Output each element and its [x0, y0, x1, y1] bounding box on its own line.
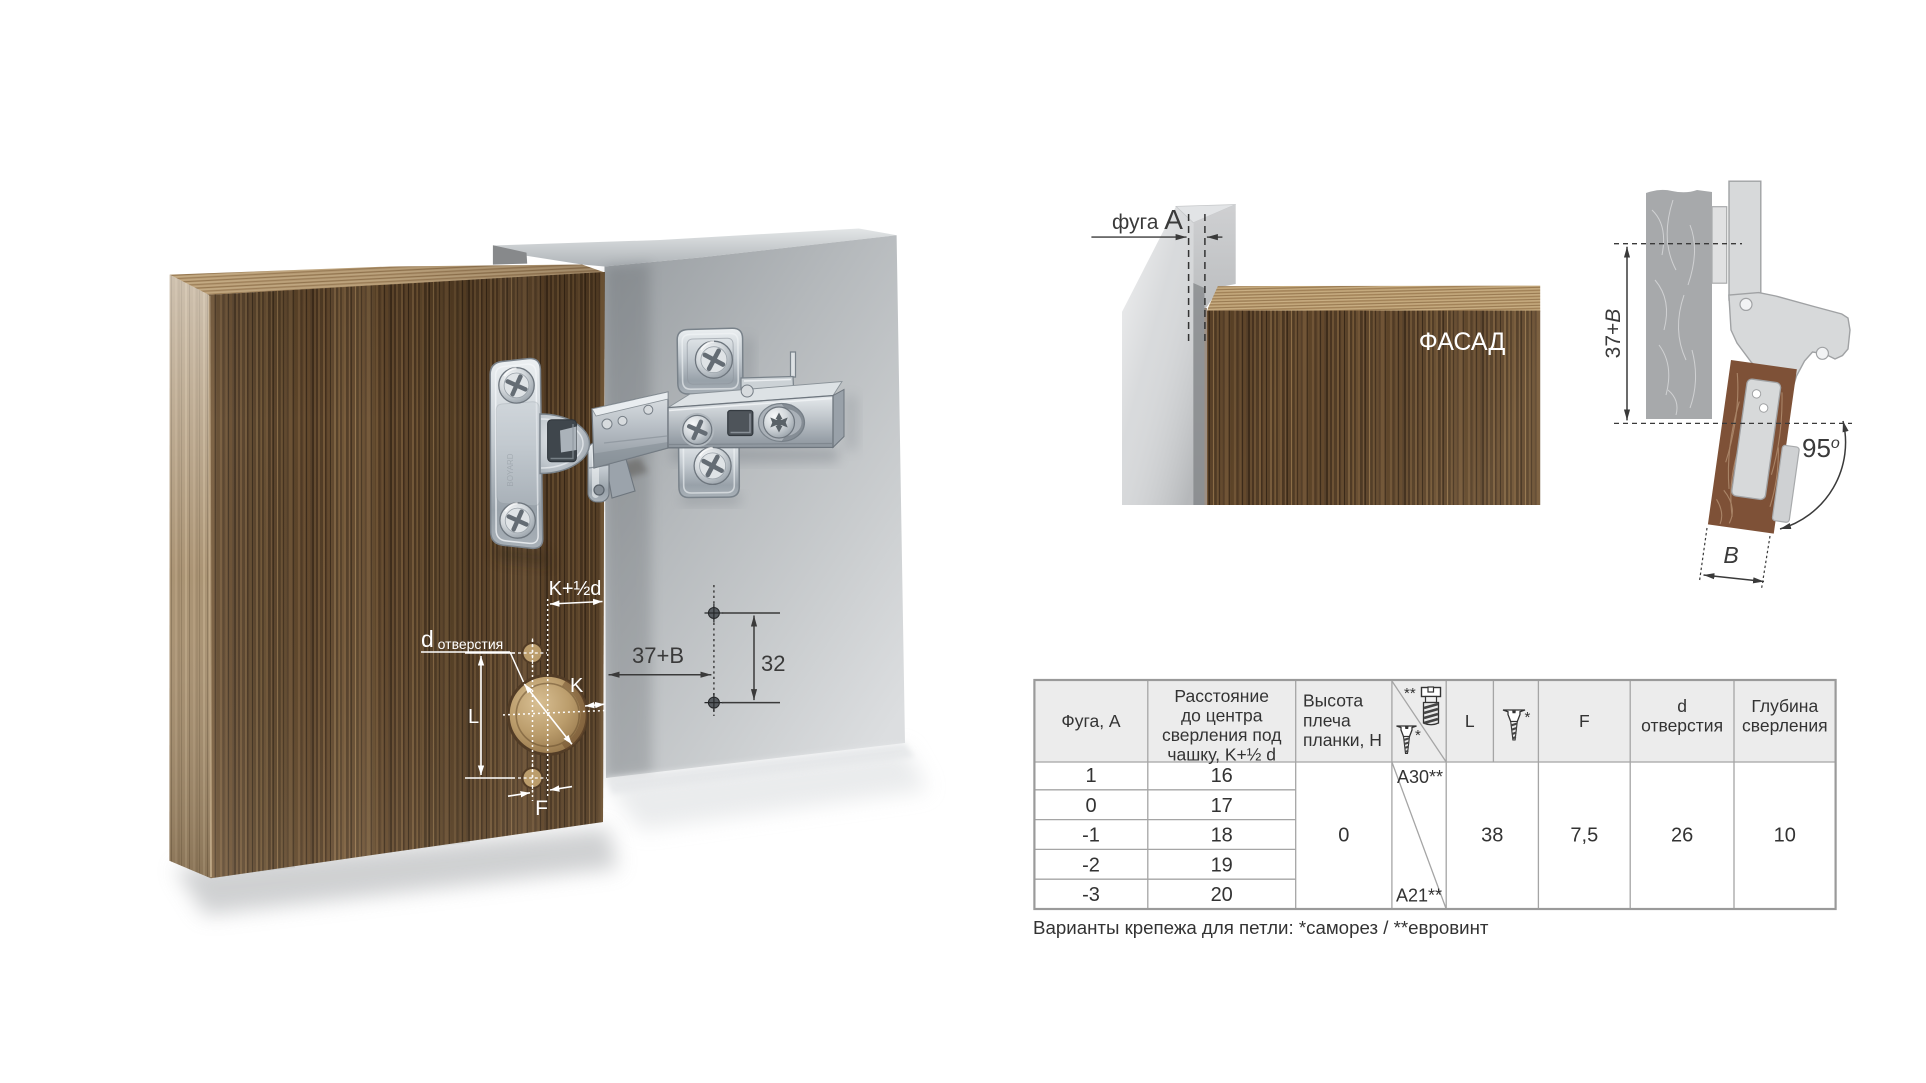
svg-text:0: 0: [1338, 825, 1349, 847]
svg-text:17: 17: [1211, 795, 1233, 817]
svg-text:B: B: [1723, 542, 1738, 568]
svg-text:d: d: [1677, 696, 1687, 716]
svg-text:20: 20: [1211, 884, 1233, 906]
svg-text:**: **: [1404, 685, 1416, 702]
svg-text:37+B: 37+B: [632, 643, 684, 668]
svg-text:16: 16: [1211, 765, 1233, 787]
svg-text:-1: -1: [1082, 825, 1100, 847]
svg-text:сверления: сверления: [1742, 716, 1828, 736]
svg-text:до центра: до центра: [1181, 706, 1263, 726]
svg-text:A21**: A21**: [1396, 886, 1442, 906]
svg-text:плеча: плеча: [1303, 710, 1351, 730]
svg-text:BOYARD: BOYARD: [506, 453, 515, 486]
svg-text:Высота: Высота: [1303, 691, 1363, 711]
svg-text:чашку, K+½ d: чашку, K+½ d: [1167, 745, 1276, 765]
svg-text:*: *: [1415, 727, 1421, 744]
svg-text:*: *: [1525, 709, 1531, 726]
svg-text:19: 19: [1211, 855, 1233, 877]
svg-text:-3: -3: [1082, 884, 1100, 906]
svg-text:26: 26: [1671, 825, 1693, 847]
svg-text:38: 38: [1481, 825, 1503, 847]
svg-text:отверстия: отверстия: [1641, 716, 1723, 736]
svg-text:Варианты крепежа для петли: *с: Варианты крепежа для петли: *саморез / *…: [1033, 917, 1489, 938]
svg-text:32: 32: [761, 651, 785, 676]
svg-text:A30**: A30**: [1397, 767, 1443, 787]
svg-text:F: F: [1579, 711, 1590, 731]
svg-text:7,5: 7,5: [1570, 825, 1598, 847]
svg-text:планки, Н: планки, Н: [1303, 730, 1382, 750]
svg-text:-2: -2: [1082, 855, 1100, 877]
svg-text:0: 0: [1085, 795, 1096, 817]
svg-text:10: 10: [1774, 825, 1796, 847]
svg-text:сверления под: сверления под: [1162, 725, 1281, 745]
svg-text:1: 1: [1085, 765, 1096, 787]
svg-text:Расстояние: Расстояние: [1174, 686, 1269, 706]
svg-text:K: K: [570, 675, 584, 697]
svg-text:L: L: [468, 706, 479, 728]
svg-text:37+B: 37+B: [1602, 309, 1625, 359]
svg-text:18: 18: [1211, 825, 1233, 847]
svg-text:L: L: [1465, 711, 1475, 731]
svg-text:Фуга, А: Фуга, А: [1061, 711, 1121, 731]
svg-text:F: F: [535, 797, 548, 820]
svg-text:Глубина: Глубина: [1751, 696, 1818, 716]
svg-text:K+½d: K+½d: [549, 578, 602, 600]
svg-text:ФАСАД: ФАСАД: [1419, 328, 1506, 356]
